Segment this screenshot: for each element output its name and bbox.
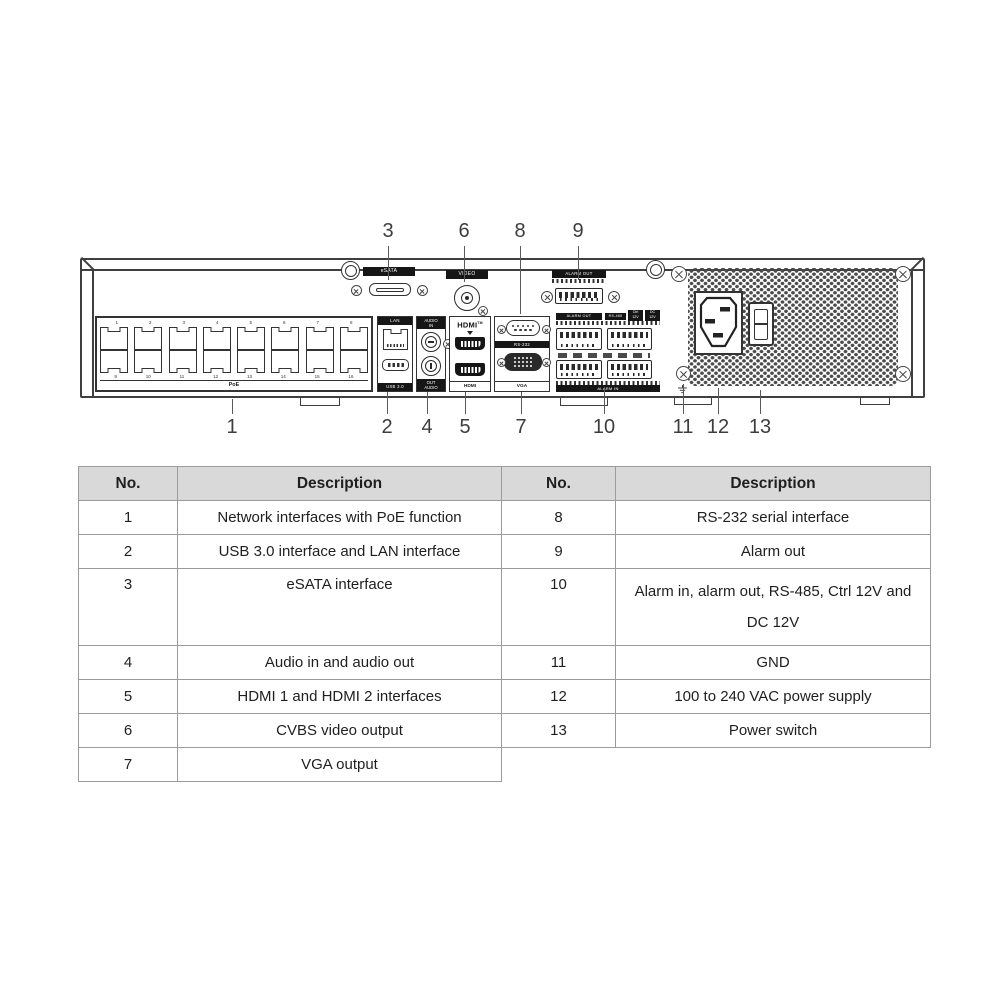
- rj45-tab: [245, 327, 258, 333]
- poe-label: PoE: [100, 380, 368, 390]
- usb-label: USB 3.0: [378, 383, 412, 391]
- rj45-port-icon: [134, 327, 162, 350]
- table-header-cell: No.: [79, 467, 178, 501]
- callout-number-11: 11: [673, 416, 694, 438]
- poe-port-number: 5: [249, 320, 252, 326]
- cell-description: 100 to 240 VAC power supply: [616, 680, 931, 714]
- rj45-port-icon: [134, 350, 162, 373]
- callout-line-9: [578, 246, 579, 280]
- table-row: 6CVBS video output13Power switch: [79, 714, 931, 748]
- hdmi-port-2-icon: [455, 363, 485, 376]
- thumbscrew-icon: [646, 260, 665, 279]
- callout-line-6: [464, 246, 465, 282]
- alarm-in-label: ALARM IN: [556, 385, 660, 392]
- hdmi-logo: HDMITM: [450, 319, 490, 330]
- callout-line-8: [520, 246, 521, 314]
- table-row: 7VGA output: [79, 748, 931, 782]
- rj45-tab: [279, 327, 292, 333]
- rj45-tab: [108, 368, 121, 374]
- cell-no: 7: [79, 748, 178, 782]
- serial-block: RS-232 VGA: [494, 316, 550, 392]
- callout-number-5: 5: [459, 416, 470, 438]
- cell-no: 5: [79, 680, 178, 714]
- cell-no: 4: [79, 646, 178, 680]
- poe-port-number: 11: [180, 374, 185, 380]
- chassis-foot: [860, 398, 890, 405]
- screw-icon: [541, 291, 553, 303]
- table-header-cell: Description: [616, 467, 931, 501]
- rj45-tab: [347, 327, 360, 333]
- rj45-port-icon: [169, 327, 197, 350]
- screw-icon: [608, 291, 620, 303]
- rs232-connector-icon: [506, 320, 540, 336]
- cell-no: 6: [79, 714, 178, 748]
- vga-label: VGA: [495, 381, 549, 391]
- usb-port-icon: [382, 359, 409, 371]
- cell-description-empty: [616, 748, 931, 782]
- screw-icon: [542, 325, 551, 334]
- callout-line-13: [760, 390, 761, 414]
- rj45-tab: [245, 368, 258, 374]
- rj45-tab: [313, 368, 326, 374]
- rj45-port-icon: [271, 327, 299, 350]
- rj45-port-icon: [237, 350, 265, 373]
- poe-port-number: 6: [283, 320, 286, 326]
- cell-no: 10: [502, 569, 616, 646]
- rj45-tab: [142, 327, 155, 333]
- cell-description: RS-232 serial interface: [616, 501, 931, 535]
- esata-port-icon: [369, 283, 411, 296]
- rj45-port-icon: [306, 350, 334, 373]
- callout-number-6: 6: [458, 220, 469, 242]
- screw-icon: [497, 325, 506, 334]
- ctrl-12v-label: Ctrl12V: [628, 310, 643, 321]
- table-row: 1Network interfaces with PoE function8RS…: [79, 501, 931, 535]
- cell-no: 2: [79, 535, 178, 569]
- audio-out-jack-icon: [421, 356, 441, 376]
- callout-number-12: 12: [707, 416, 729, 438]
- rj45-port-icon: [203, 327, 231, 350]
- poe-port-number: 13: [247, 374, 252, 380]
- rj45-port-icon: [100, 350, 128, 373]
- screw-icon: [351, 285, 362, 296]
- rs485-label: RS-485: [605, 313, 626, 320]
- lan-label: LAN: [378, 317, 412, 325]
- lan-port-icon: [383, 329, 408, 350]
- cell-description: Power switch: [616, 714, 931, 748]
- screw-icon: [895, 266, 911, 282]
- screw-icon: [497, 358, 506, 367]
- rj45-port-icon: [271, 350, 299, 373]
- description-table: No.DescriptionNo.Description1Network int…: [78, 466, 930, 782]
- cell-no-empty: [502, 748, 616, 782]
- poe-port-number: 1: [115, 320, 118, 326]
- chassis-foot: [300, 398, 340, 406]
- cell-description: GND: [616, 646, 931, 680]
- cell-description: Alarm out: [616, 535, 931, 569]
- cell-no: 11: [502, 646, 616, 680]
- rj45-tab: [176, 327, 189, 333]
- audio-block: AUDIOIN OUTAUDIO: [416, 316, 446, 392]
- callout-line-5: [465, 392, 466, 414]
- callout-number-13: 13: [749, 416, 771, 438]
- callout-number-7: 7: [515, 416, 526, 438]
- power-switch-rocker-line: [755, 323, 767, 325]
- cell-no: 3: [79, 569, 178, 646]
- table-row: 4Audio in and audio out11GND: [79, 646, 931, 680]
- poe-port-numbers-top: 12345678: [100, 320, 368, 326]
- rj45-tab: [279, 368, 292, 374]
- callout-number-9: 9: [572, 220, 583, 242]
- gnd-screw-icon: [676, 366, 691, 381]
- alarm-terminal-icon: [607, 328, 652, 350]
- callout-number-1: 1: [226, 416, 237, 438]
- callout-line-1: [232, 399, 233, 414]
- audio-out-label: OUTAUDIO: [417, 379, 445, 391]
- table-header-cell: Description: [178, 467, 502, 501]
- alarm-terminal-icon: [556, 360, 602, 379]
- audio-in-label: AUDIOIN: [417, 317, 445, 329]
- cvbs-bnc-icon: [454, 285, 480, 311]
- callout-number-8: 8: [514, 220, 525, 242]
- rear-panel-diagram: 12345678 910111213141516 PoE LAN USB 3.0…: [0, 0, 1000, 460]
- cell-no: 13: [502, 714, 616, 748]
- poe-port-number: 15: [315, 374, 320, 380]
- cell-description: HDMI 1 and HDMI 2 interfaces: [178, 680, 502, 714]
- callout-line-10: [604, 389, 605, 414]
- screw-icon: [895, 366, 911, 382]
- callout-line-3: [388, 246, 389, 280]
- poe-port-number: 4: [216, 320, 219, 326]
- poe-port-number: 16: [348, 374, 353, 380]
- callout-line-12: [718, 388, 719, 414]
- poe-port-number: 9: [114, 374, 117, 380]
- poe-port-number: 2: [149, 320, 152, 326]
- poe-ports-row-top: [100, 327, 368, 350]
- screw-icon: [671, 266, 687, 282]
- chassis-right-inner-line: [911, 270, 913, 396]
- cell-description: Audio in and audio out: [178, 646, 502, 680]
- power-inlet: [694, 291, 743, 355]
- rj45-tab: [176, 368, 189, 374]
- cell-no: 12: [502, 680, 616, 714]
- rj45-port-icon: [340, 350, 368, 373]
- table-header-cell: No.: [502, 467, 616, 501]
- chassis-foot: [674, 398, 712, 405]
- poe-ports-row-bottom: [100, 350, 368, 373]
- rj45-tab: [142, 368, 155, 374]
- audio-in-jack-icon: [421, 332, 441, 352]
- poe-port-number: 14: [281, 374, 286, 380]
- callout-number-2: 2: [381, 416, 392, 438]
- screw-icon: [542, 358, 551, 367]
- poe-port-block: 12345678 910111213141516 PoE: [95, 316, 373, 392]
- terminal-connector-strip: [558, 353, 650, 358]
- rj45-port-icon: [100, 327, 128, 350]
- rj45-tab: [108, 327, 121, 333]
- power-switch-rocker: [754, 309, 768, 340]
- thumbscrew-icon: [341, 261, 360, 280]
- cell-no: 8: [502, 501, 616, 535]
- alarm-out-terminal-icon: [555, 288, 603, 304]
- alarm-terminal-icon: [607, 360, 652, 379]
- poe-port-number: 10: [146, 374, 151, 380]
- chassis-left-inner-line: [92, 270, 94, 396]
- cell-description: USB 3.0 interface and LAN interface: [178, 535, 502, 569]
- hdmi-block: HDMITM HDMI: [449, 316, 491, 392]
- rj45-tab: [347, 368, 360, 374]
- rj45-port-icon: [340, 327, 368, 350]
- poe-port-numbers-bottom: 910111213141516: [100, 374, 368, 380]
- cell-description: CVBS video output: [178, 714, 502, 748]
- hdmi-bottom-label: HDMI: [450, 381, 490, 391]
- callout-number-4: 4: [421, 416, 432, 438]
- cell-description: eSATA interface: [178, 569, 502, 646]
- power-switch: [748, 302, 774, 346]
- cell-no: 9: [502, 535, 616, 569]
- chassis-foot: [560, 398, 608, 406]
- video-label: VIDEO: [446, 270, 488, 279]
- cell-description: Alarm in, alarm out, RS-485, Ctrl 12V an…: [616, 569, 931, 646]
- callout-line-2: [387, 392, 388, 414]
- table-header-row: No.DescriptionNo.Description: [79, 467, 931, 501]
- lan-usb-block: LAN USB 3.0: [377, 316, 413, 392]
- rj45-port-icon: [169, 350, 197, 373]
- hdmi-arrow-icon: [467, 331, 473, 335]
- cell-description: VGA output: [178, 748, 502, 782]
- poe-port-number: 3: [182, 320, 185, 326]
- rj45-tab: [210, 368, 223, 374]
- callout-number-10: 10: [593, 416, 615, 438]
- vga-connector-icon: [504, 353, 542, 371]
- callout-line-11: [683, 384, 684, 414]
- callout-line-4: [427, 392, 428, 414]
- pin-strip: [556, 381, 660, 385]
- rs232-label: RS-232: [495, 341, 549, 348]
- table-row: 5HDMI 1 and HDMI 2 interfaces12100 to 24…: [79, 680, 931, 714]
- alarm-out-label: ALARM OUT: [556, 313, 602, 320]
- screw-icon: [417, 285, 428, 296]
- dc-12v-label: DC12V: [645, 310, 660, 321]
- screw-icon: [478, 306, 488, 316]
- alarm-terminal-icon: [556, 328, 602, 350]
- ports-description-table: No.DescriptionNo.Description1Network int…: [78, 466, 931, 782]
- poe-port-number: 7: [316, 320, 319, 326]
- callout-number-3: 3: [382, 220, 393, 242]
- table-row: 2USB 3.0 interface and LAN interface9Ala…: [79, 535, 931, 569]
- rj45-port-icon: [306, 327, 334, 350]
- callout-line-7: [521, 392, 522, 414]
- page: 12345678 910111213141516 PoE LAN USB 3.0…: [0, 0, 1000, 1000]
- poe-port-number: 12: [213, 374, 218, 380]
- cell-description: Network interfaces with PoE function: [178, 501, 502, 535]
- rj45-port-icon: [237, 327, 265, 350]
- cell-no: 1: [79, 501, 178, 535]
- rj45-tab: [313, 327, 326, 333]
- hdmi-port-1-icon: [455, 337, 485, 350]
- poe-port-number: 8: [350, 320, 353, 326]
- pin-strip: [556, 321, 660, 325]
- table-row: 3eSATA interface10Alarm in, alarm out, R…: [79, 569, 931, 646]
- rj45-port-icon: [203, 350, 231, 373]
- rj45-tab: [210, 327, 223, 333]
